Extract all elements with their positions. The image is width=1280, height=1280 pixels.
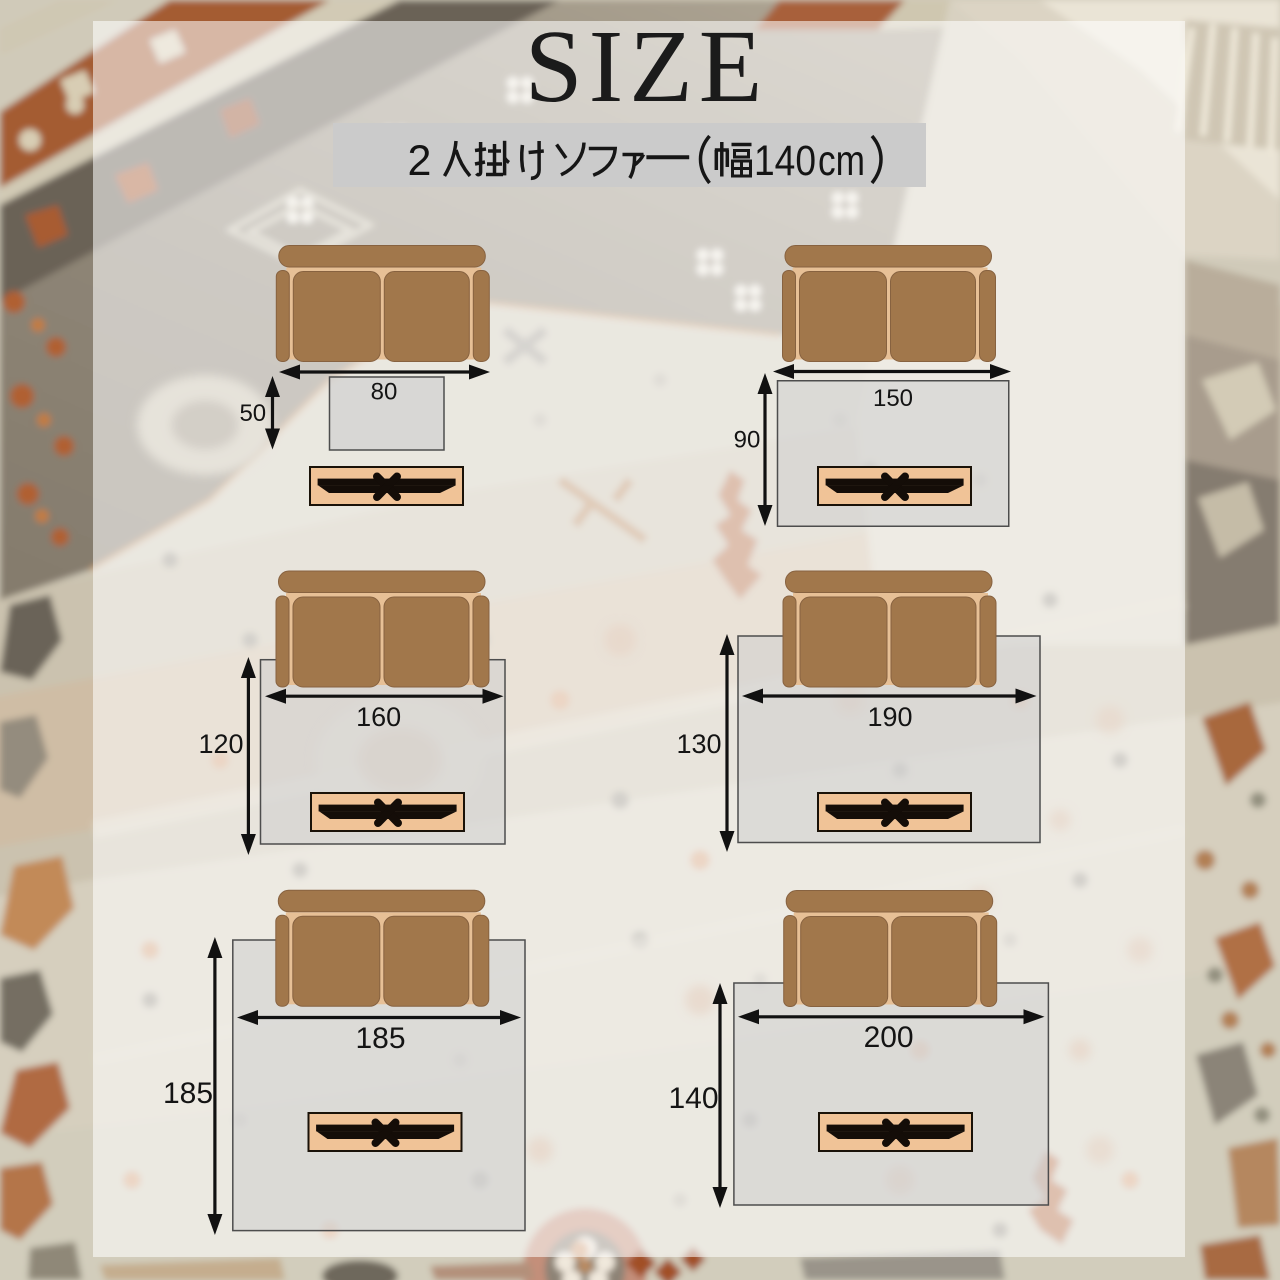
svg-text:185: 185 — [355, 1022, 405, 1055]
svg-text:2: 2 — [408, 137, 432, 185]
svg-text:cm: cm — [818, 137, 865, 185]
svg-text:140: 140 — [754, 137, 816, 185]
svg-text:90: 90 — [734, 427, 761, 454]
svg-text:185: 185 — [163, 1077, 213, 1110]
svg-text:130: 130 — [676, 729, 721, 759]
svg-text:120: 120 — [198, 729, 243, 759]
svg-text:160: 160 — [356, 702, 401, 732]
svg-text:200: 200 — [864, 1021, 914, 1054]
svg-text:150: 150 — [873, 385, 913, 412]
svg-text:140: 140 — [668, 1082, 718, 1115]
svg-text:80: 80 — [371, 379, 398, 406]
svg-text:190: 190 — [867, 702, 912, 732]
svg-text:50: 50 — [239, 400, 266, 427]
